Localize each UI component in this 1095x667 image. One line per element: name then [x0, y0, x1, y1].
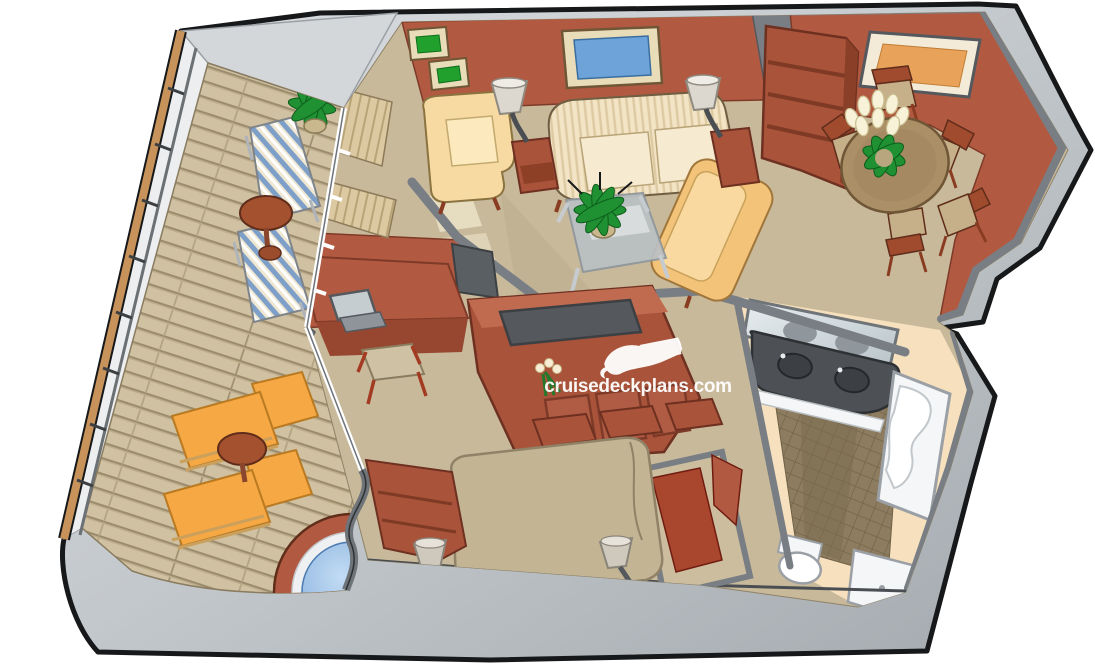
floorplan-canvas: cruisedeckplans.com — [0, 0, 1095, 667]
tv — [452, 244, 498, 298]
picture-frame-green-2 — [429, 58, 469, 90]
faucet — [838, 368, 843, 373]
faucet — [781, 354, 786, 359]
armchair-cushion — [446, 116, 498, 166]
suite-floorplan-illustration: cruisedeckplans.com — [0, 0, 1095, 667]
table-base — [259, 246, 281, 260]
sofa-cushion — [580, 132, 654, 191]
side-table-left — [512, 138, 558, 193]
table-stem — [242, 463, 245, 482]
window-blue — [562, 27, 662, 88]
desk — [300, 256, 468, 356]
picture-frame-green-1 — [408, 27, 449, 60]
plant-pot — [304, 119, 326, 133]
vase — [875, 149, 893, 167]
watermark-text: cruisedeckplans.com — [544, 376, 732, 397]
